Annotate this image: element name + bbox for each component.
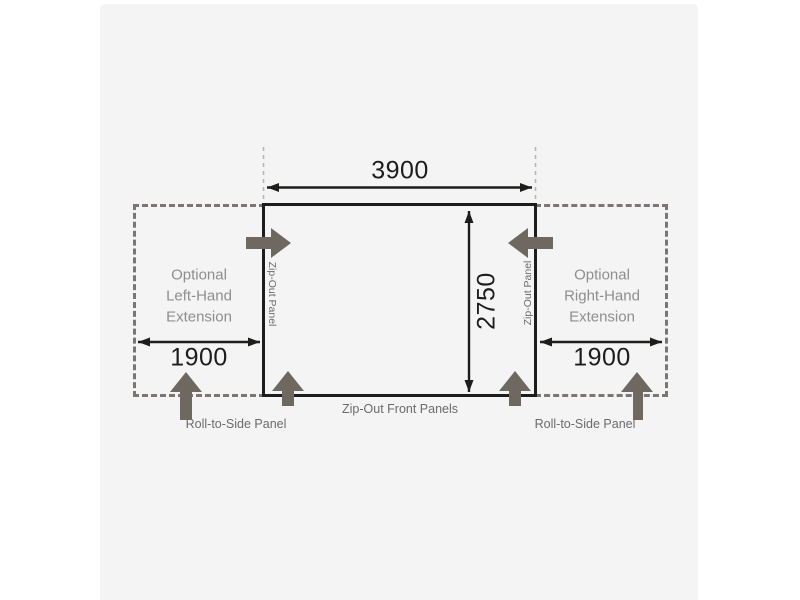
right-extension-label: Optional Right-Hand Extension [564,265,640,328]
roll-to-side-left-label: Roll-to-Side Panel [186,417,287,431]
left-extension-dimension-label: 1900 [170,344,228,373]
main-depth-dimension-label: 2750 [473,272,502,330]
zip-out-panel-right-label: Zip-Out Panel [522,261,534,326]
zip-out-left-arrow-right-icon [246,228,291,258]
zip-out-right-arrow-left-icon [508,228,553,258]
right-extension-dimension-label: 1900 [573,344,631,373]
zip-out-front-panels-label: Zip-Out Front Panels [342,402,458,416]
diagram-stage: 3900 2750 1900 1900 Optional Left-Hand E… [0,0,800,600]
left-extension-label: Optional Left-Hand Extension [166,265,232,328]
roll-to-side-right-label: Roll-to-Side Panel [535,417,636,431]
diagram-canvas [0,0,800,600]
front-panel-right-arrow-up-icon [499,371,531,406]
front-panel-left-arrow-up-icon [272,371,304,406]
zip-out-panel-left-label: Zip-Out Panel [266,262,278,327]
roll-to-side-right-arrow-up-icon [621,372,653,420]
main-width-dimension-label: 3900 [371,157,429,186]
roll-to-side-left-arrow-up-icon [170,372,202,420]
